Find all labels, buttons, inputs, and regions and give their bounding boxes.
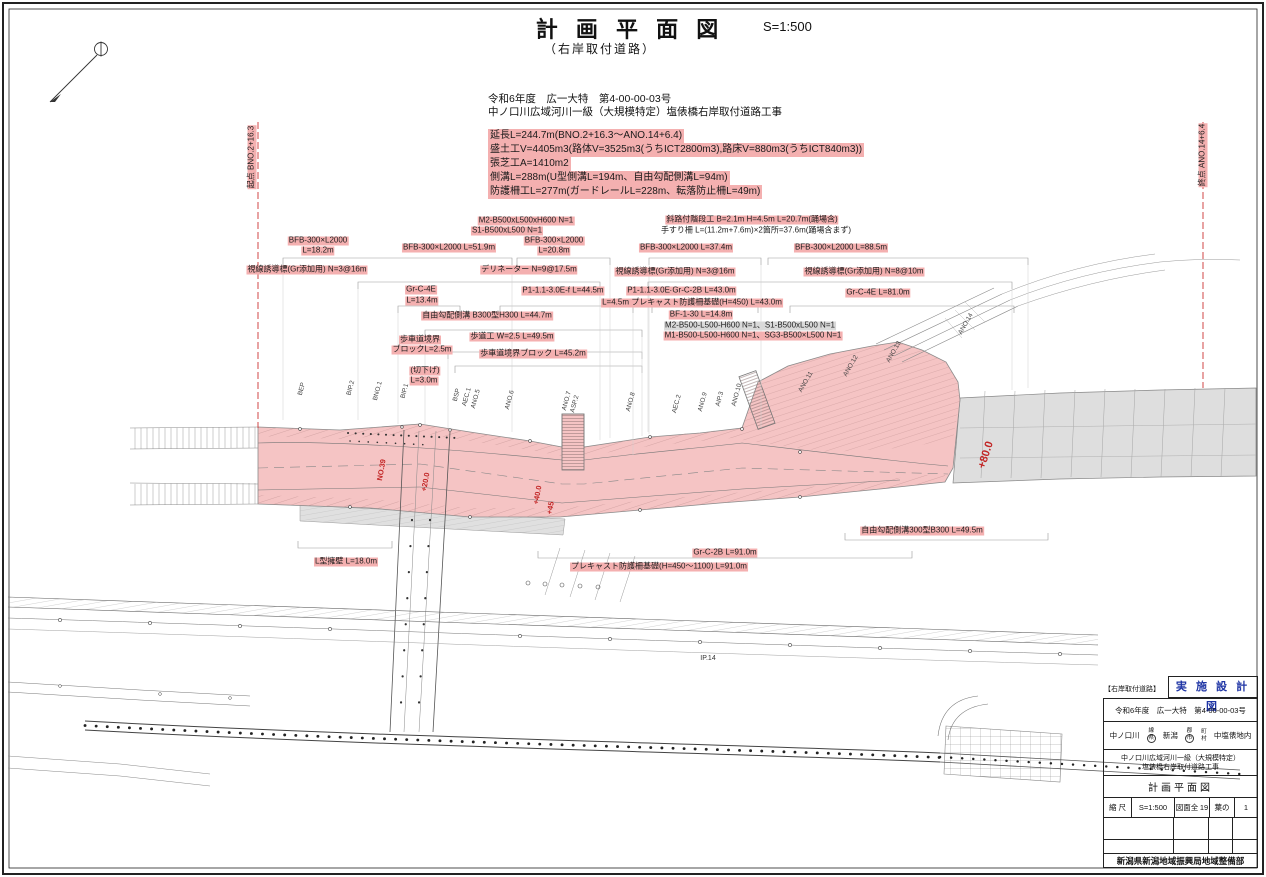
title-block-row-location: 中ノ口川 線県 新潟 郡市 町村 中塩俵地内 [1104,721,1257,749]
scale-value: S=1:500 [1132,798,1175,817]
label-shi: 市 [1185,734,1194,743]
page-subtitle: （右岸取付道路） [440,40,760,57]
organization-name: 新潟県新潟地域振興局地域整備部 [1104,853,1257,867]
leaf-number: 1 [1235,798,1257,817]
title-block-side-note: 【右岸取付道路】 [1104,684,1160,694]
summary-line: 側溝L=288m(U型側溝L=194m、自由勾配側溝L=94m) [488,171,730,185]
project-header-line2: 中ノ口川広域河川一級（大規模特定）塩俵橋右岸取付道路工事 [488,106,782,119]
project-header-line1: 令和6年度 広一大特 第4-00-00-03号 [488,93,782,106]
title-block-empty-row1 [1104,817,1257,839]
project-header: 令和6年度 広一大特 第4-00-00-03号 中ノ口川広域河川一級（大規模特定… [488,93,782,119]
sheets-label: 図面全 [1175,798,1199,817]
work-summary-box: 延長L=244.7m(BNO.2+16.3〜ANO.14+6.4)盛土工V=44… [488,129,864,199]
label-ken: 県 [1147,734,1156,743]
drawing-sheet: 計 画 平 面 図 S=1:500 （右岸取付道路） 令和6年度 広一大特 第4… [0,0,1266,877]
river-name: 中ノ口川 [1110,730,1140,741]
title-block-row-scale: 縮 尺 S=1:500 図面全 19 葉の 1 [1104,797,1257,817]
drawing-scale: S=1:500 [763,19,812,34]
title-block-table: 令和6年度 広一大特 第4-00-00-03号 中ノ口川 線県 新潟 郡市 町村… [1103,698,1258,868]
summary-line: 延長L=244.7m(BNO.2+16.3〜ANO.14+6.4) [488,129,684,143]
scale-label: 縮 尺 [1104,798,1132,817]
pref-name: 新潟 [1163,730,1178,741]
sheet-title: 計画平面図 [1104,775,1257,797]
title-block: 【右岸取付道路】 実 施 設 計 図 令和6年度 広一大特 第4-00-00-0… [1103,676,1258,868]
site-location: 中塩俵地内 [1214,730,1252,741]
summary-line: 張芝工A=1410m2 [488,157,571,171]
title-block-row-project: 中ノ口川広域河川一級（大規模特定） 塩俵橋右岸取付道路工事 [1104,749,1257,775]
design-stamp: 実 施 設 計 図 [1168,676,1258,698]
project-name-line2: 塩俵橋右岸取付道路工事 [1142,763,1219,772]
north-arrow-icon [50,42,108,103]
project-name-line1: 中ノ口川広域河川一級（大規模特定） [1121,754,1240,763]
title-block-row-fiscal: 令和6年度 広一大特 第4-00-00-03号 [1104,699,1257,721]
leaf-label: 葉の [1210,798,1235,817]
sheets-total: 19 [1199,798,1210,817]
summary-line: 盛土工V=4405m3(路体V=3525m3(うちICT2800m3),路床V=… [488,143,864,157]
label-son: 村 [1201,736,1207,743]
title-block-empty-row2 [1104,839,1257,853]
summary-line: 防護柵工L=277m(ガードレールL=228m、転落防止柵L=49m) [488,185,762,199]
